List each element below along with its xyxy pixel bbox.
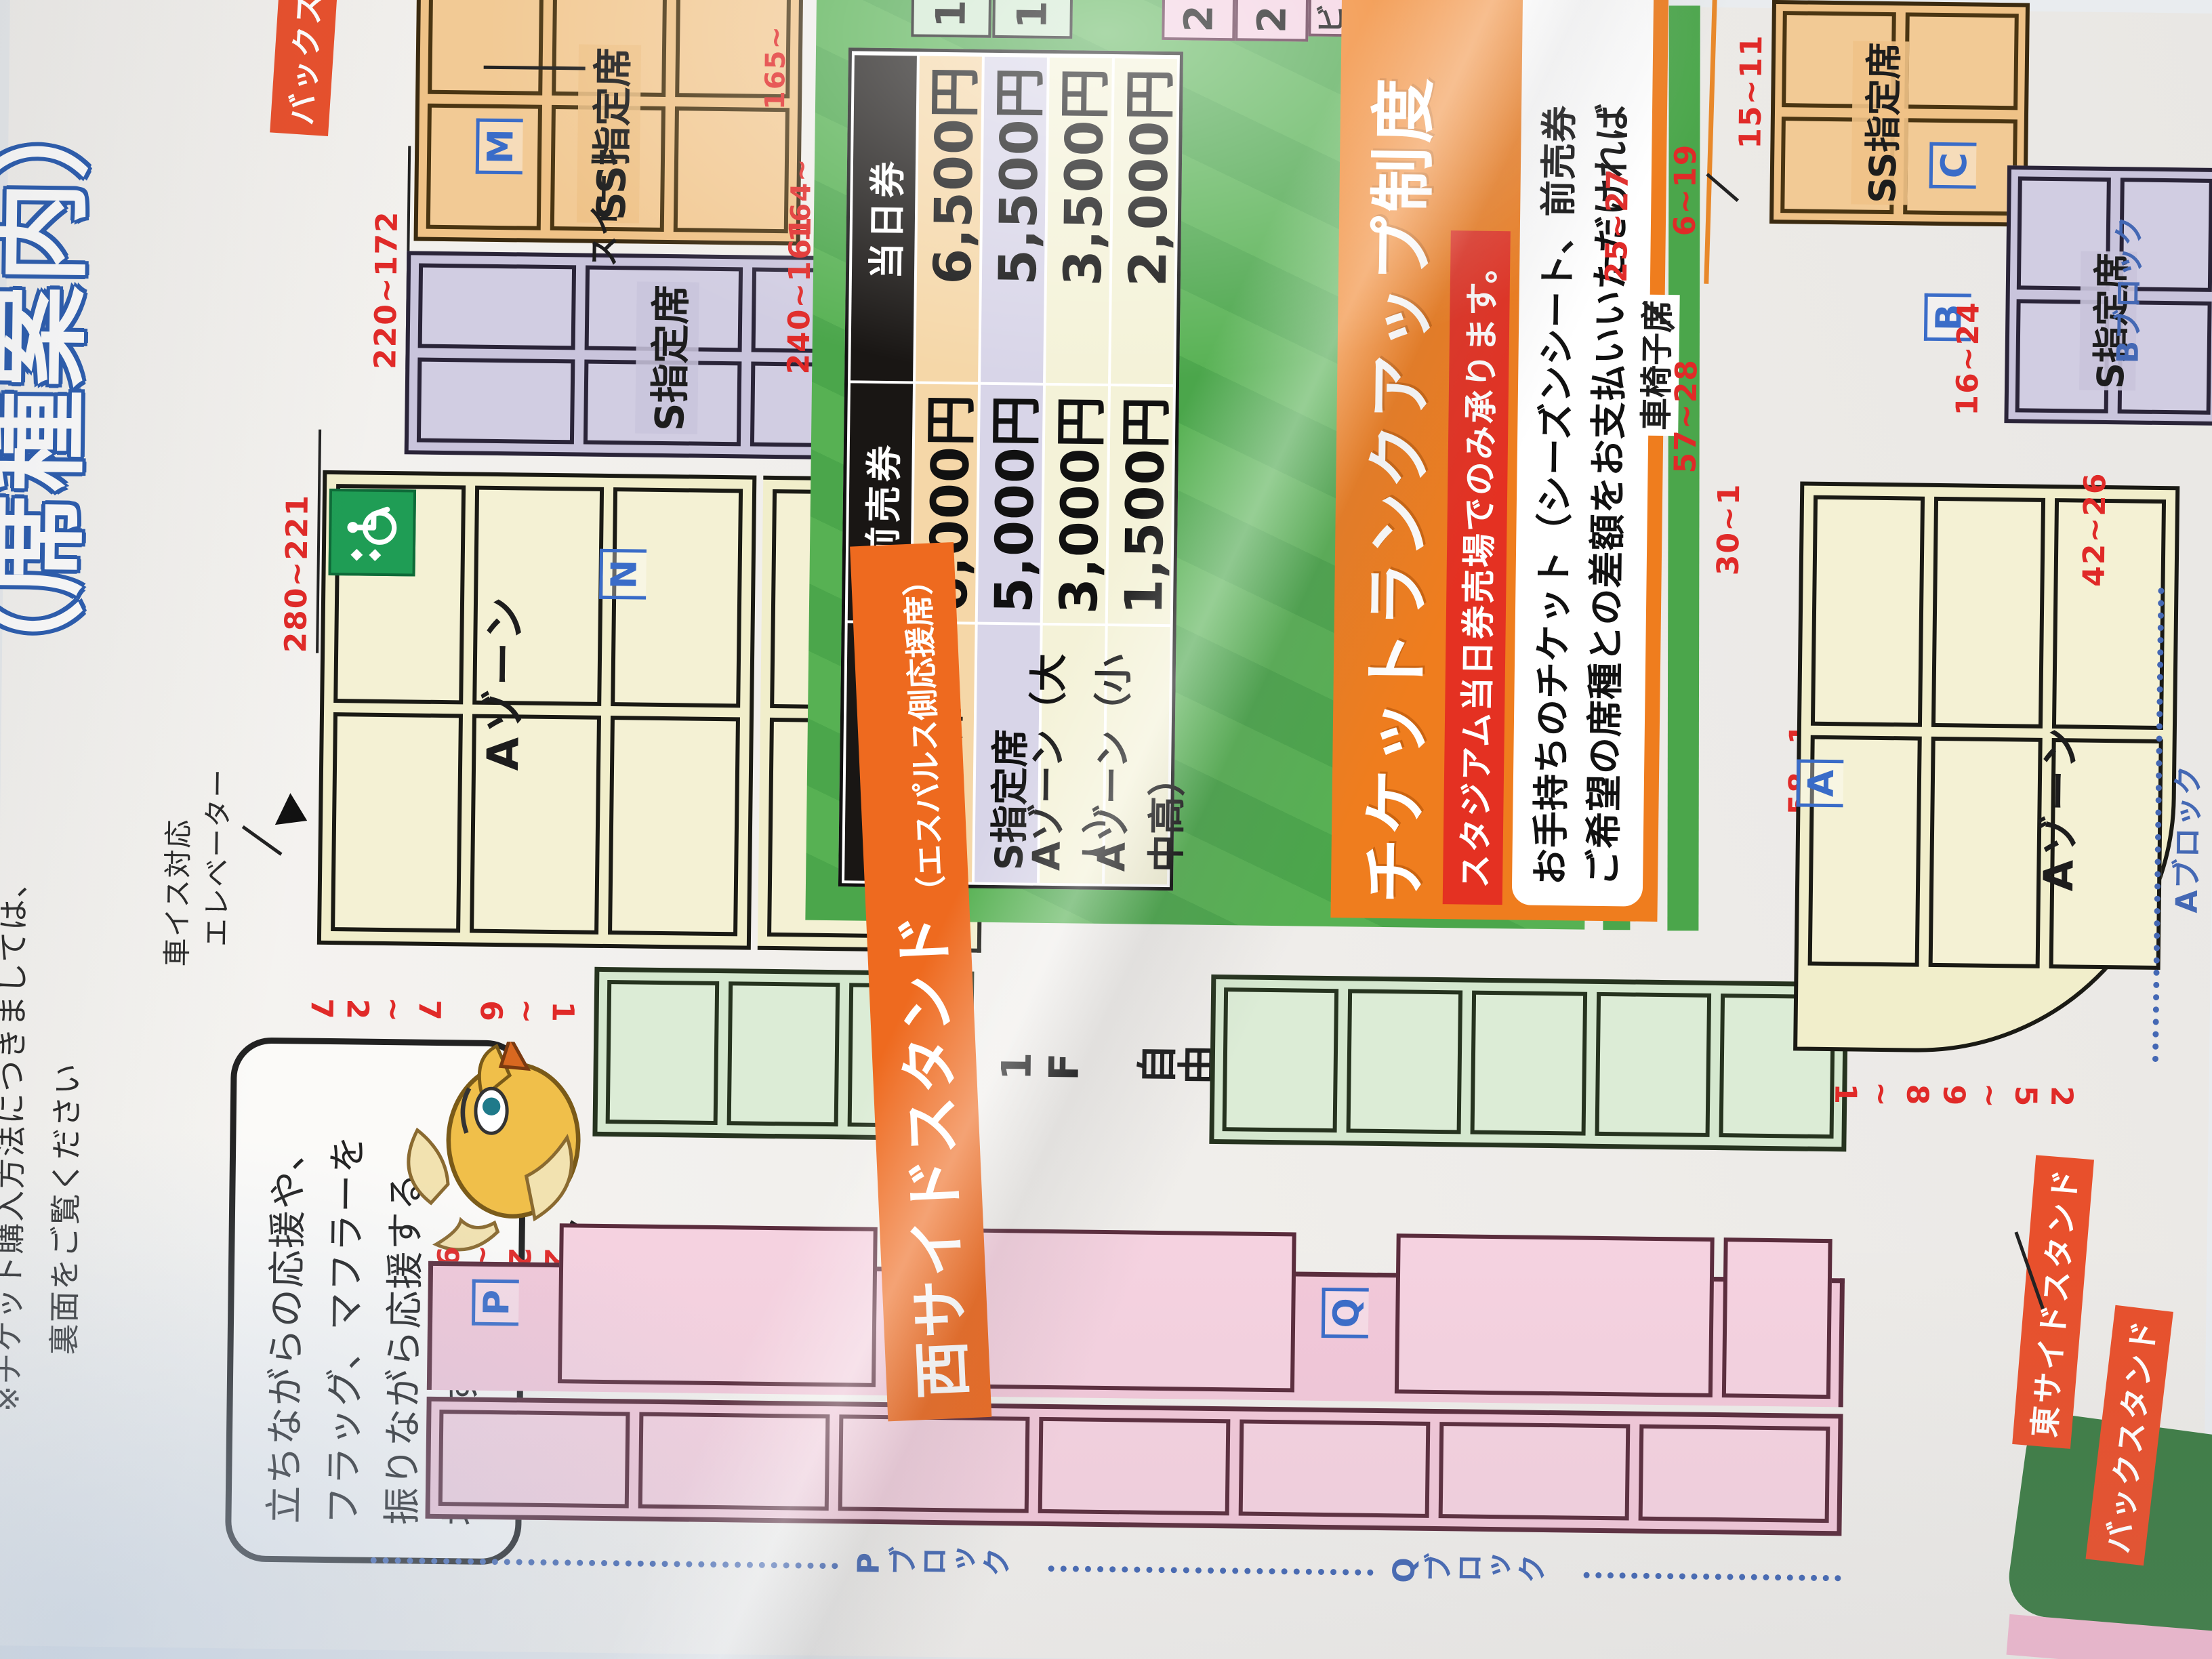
seat-block <box>1638 1425 1830 1523</box>
east-ss-label: SS指定席 <box>1851 41 1909 205</box>
suite-label: スイート <box>579 142 626 267</box>
pq-block-dotted-line2 <box>1048 1565 1374 1576</box>
range-165: 165~ <box>760 25 792 110</box>
bubble-line2: フラッグ、マフラーを <box>314 1077 379 1525</box>
seat-block <box>1722 1237 1832 1399</box>
range-15-11: 15~11 <box>1733 34 1769 149</box>
stand-2f-outer-row <box>426 1397 1843 1536</box>
range-1f-bottom-8-1: 8~1 <box>1826 1076 1935 1112</box>
seat-block <box>418 264 577 350</box>
east-c-letter-wrap: C <box>1929 142 1977 189</box>
west-s-label: S指定席 <box>635 282 699 434</box>
range-30-1: 30~1 <box>1711 483 1747 575</box>
price-row-a-student-name: Aゾーン（小中高） <box>1105 626 1170 884</box>
b-block-label: Bブロック <box>2104 214 2149 363</box>
purchase-note-line1: ※チケット購入方法につきましては、 <box>0 865 35 1412</box>
stand-1f-lower <box>1209 975 1848 1151</box>
edge-fragment-cell-p2: 2 <box>1235 0 1309 42</box>
seat-block <box>438 1410 630 1508</box>
range-1f-bottom-25-9: 25~9 <box>1935 1078 2079 1114</box>
elevator-note-line2: エレベーター <box>194 768 237 947</box>
page-title-fragment: （席種案内） <box>0 73 107 701</box>
price-row-a-adult-day: 3,500円 <box>1046 58 1112 384</box>
block-letter-q: Q <box>1322 1288 1369 1338</box>
seat-block <box>1438 1422 1630 1520</box>
seat-block <box>1929 737 2043 968</box>
stand-2f-inner-row: P 2F 自由席 Q <box>427 1261 1845 1408</box>
range-25-27: 25~27 <box>1599 168 1635 283</box>
seat-blocks-east-a <box>1797 486 2175 1052</box>
west-a-zone-label: Aゾーン <box>468 592 533 771</box>
range-16-24: 16~24 <box>1950 301 1986 416</box>
price-row-ss-day: 6,500円 <box>916 56 982 382</box>
price-header-day: 当日券 <box>851 55 917 381</box>
price-row-a-student-advance: 1,500円 <box>1108 386 1173 624</box>
edge-fragment-cell-p1: 2 <box>1162 0 1235 41</box>
rankup-body-line2: ご希望の席種との差額をお支払いいただければ <box>1577 0 1641 886</box>
stand-2f-inner-content: P 2F 自由席 Q <box>432 1266 1840 1407</box>
q-block-dotted-line3 <box>1584 1572 1841 1582</box>
range-220-172: 220~172 <box>368 146 411 370</box>
range-280-221: 280~221 <box>279 429 321 653</box>
seat-block <box>1347 989 1463 1134</box>
leaflet-photo: ※チケット購入方法につきましては、 裏面をご覧ください （席種案内） 立ちながら… <box>0 0 2212 1659</box>
edge-fragment-cell-g1: 1 <box>911 0 991 38</box>
seat-block <box>638 1412 830 1511</box>
range-57-28: 57~28 <box>1668 359 1704 474</box>
rankup-title: チケットランクアップ制度 <box>1342 0 1448 904</box>
elevator-note-line1: 車イス対応 <box>154 818 197 966</box>
west-banner-main: 西サイドスタンド <box>890 909 979 1400</box>
seat-block <box>558 1223 878 1387</box>
p-block-dotted-line <box>371 1557 838 1569</box>
seat-block <box>1595 992 1711 1137</box>
seat-block <box>417 358 575 445</box>
seat-block <box>1038 1417 1230 1515</box>
price-row-s-day: 5,500円 <box>981 57 1047 383</box>
west-banner-sub: （エスパルス側応援席） <box>899 564 950 908</box>
block-letter-q-wrap: Q <box>1304 1233 1387 1393</box>
seat-block <box>1223 987 1339 1132</box>
page-fold-orange-line <box>1704 0 1717 284</box>
seat-block <box>608 716 740 936</box>
seat-block <box>1904 12 2019 110</box>
east-a-zone-label: Aゾーン <box>2026 723 2087 891</box>
price-row-a-adult-advance: 3,000円 <box>1043 386 1108 623</box>
leaflet-page: ※チケット購入方法につきましては、 裏面をご覧ください （席種案内） 立ちながら… <box>0 0 2212 1659</box>
p-block-label: Pブロック <box>851 1542 1012 1587</box>
block-letter-n: N <box>599 549 647 599</box>
rankup-subtitle: スタジアム当日券売場でのみ承ります。 <box>1443 231 1511 905</box>
wheelchair-access-icon <box>328 489 416 577</box>
elevator-leader-line <box>242 825 283 856</box>
west-m-letter-wrap: M <box>476 119 523 175</box>
west-n-letter-wrap: N <box>599 549 647 599</box>
seat-block <box>838 1414 1030 1513</box>
seat-block <box>1931 497 2045 729</box>
east-a-zone-area <box>1793 481 2179 1055</box>
a-block-label: Aブロック <box>2163 764 2208 914</box>
price-row-s-advance: 5,000円 <box>978 385 1043 623</box>
seat-block <box>1811 495 1925 727</box>
rankup-body: お手持ちのチケット（シーズンシート、前売券 ご希望の席種との差額をお支払いいただ… <box>1512 0 1654 907</box>
range-6-19: 6~19 <box>1668 143 1704 236</box>
seat-block <box>331 712 463 933</box>
range-1f-end-1-6: 1~6 <box>472 994 580 1029</box>
purchase-note-line2: 裏面をご覧ください <box>39 1062 87 1355</box>
block-letter-p: P <box>471 1279 518 1326</box>
seat-block <box>1238 1419 1430 1517</box>
price-row-a-student-day: 2,000円 <box>1111 58 1177 384</box>
range-1f-end-7-27: 7~27 <box>302 991 447 1028</box>
seat-block <box>1395 1233 1715 1397</box>
elevator-arrow-icon <box>275 793 315 836</box>
rankup-promo-box: チケットランクアップ制度 スタジアム当日券売場でのみ承ります。 お手持ちのチケッ… <box>1330 0 1668 922</box>
seat-blocks-1f-lower <box>1214 979 1843 1147</box>
seat-block <box>976 1229 1296 1393</box>
seat-block <box>726 981 840 1126</box>
range-42-26: 42~26 <box>2076 472 2112 587</box>
seat-block <box>428 0 544 96</box>
bubble-line1: 立ちながらの応援や、 <box>255 1076 320 1524</box>
seat-block <box>674 106 790 233</box>
edge-fragment-cell-g2: 1 <box>992 0 1073 39</box>
block-letter-a: A <box>1796 759 1843 807</box>
block-letter-m: M <box>476 119 523 175</box>
east-a-letter-wrap: A <box>1796 759 1843 807</box>
seat-blocks-2f-outer <box>430 1401 1839 1531</box>
backstand-corner-label: バックスタンド <box>270 0 339 136</box>
seat-block <box>606 980 719 1125</box>
block-letter-c: C <box>1929 142 1977 189</box>
block-letter-p-wrap: P <box>440 1222 550 1383</box>
q-block-label: Qブロック <box>1387 1549 1548 1594</box>
seat-block <box>1471 991 1587 1136</box>
